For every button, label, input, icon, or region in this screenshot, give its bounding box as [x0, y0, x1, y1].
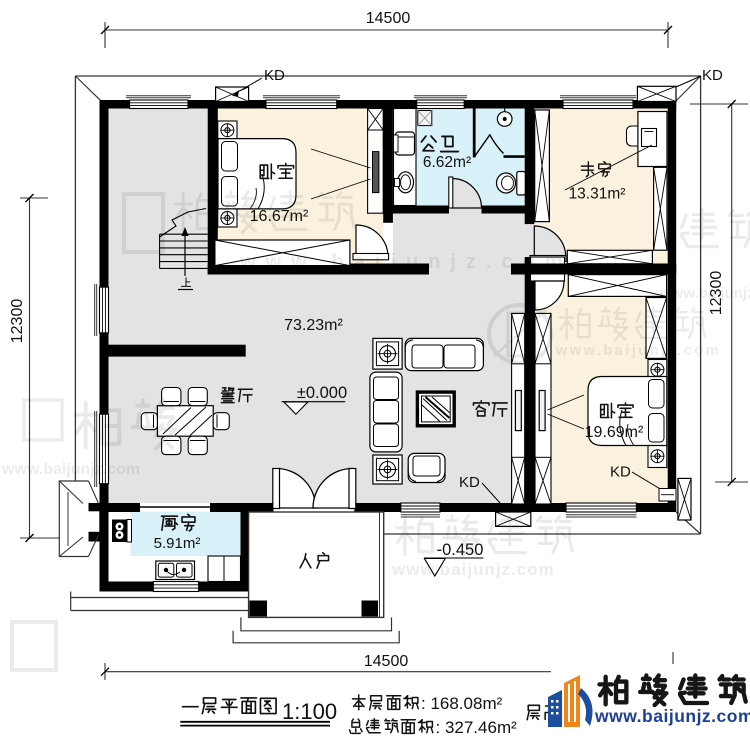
svg-text:1:100: 1:100: [282, 699, 337, 724]
svg-text:19.69m²: 19.69m²: [585, 424, 644, 441]
svg-text:: 168.08m²: : 168.08m²: [421, 694, 503, 713]
svg-text:13.31m²: 13.31m²: [569, 186, 626, 203]
svg-text:12300: 12300: [9, 299, 26, 344]
svg-text:www.baijunjz.com: www.baijunjz.com: [239, 251, 573, 273]
svg-text:www.baijunjz: www.baijunjz: [659, 285, 750, 302]
svg-text:www.baijunjz.com: www.baijunjz.com: [594, 706, 750, 726]
svg-text:www.baijunjz.com: www.baijunjz.com: [391, 560, 555, 579]
svg-text:73.23m²: 73.23m²: [284, 317, 343, 334]
svg-text:5.91m²: 5.91m²: [154, 535, 201, 552]
svg-text:KD: KD: [702, 67, 723, 84]
svg-text:14500: 14500: [364, 653, 409, 670]
svg-text:KD: KD: [610, 464, 631, 481]
svg-text:14500: 14500: [366, 10, 411, 27]
svg-text:www.baijunjz.com: www.baijunjz.com: [1, 461, 140, 478]
svg-text:: 327.46m²: : 327.46m²: [436, 718, 518, 737]
svg-text:KD: KD: [459, 474, 480, 491]
svg-text:6.62m²: 6.62m²: [423, 154, 471, 171]
svg-text:±0.000: ±0.000: [297, 384, 347, 402]
svg-text:www.baijunjz.com: www.baijunjz.com: [555, 343, 721, 359]
svg-text:KD: KD: [264, 67, 285, 84]
